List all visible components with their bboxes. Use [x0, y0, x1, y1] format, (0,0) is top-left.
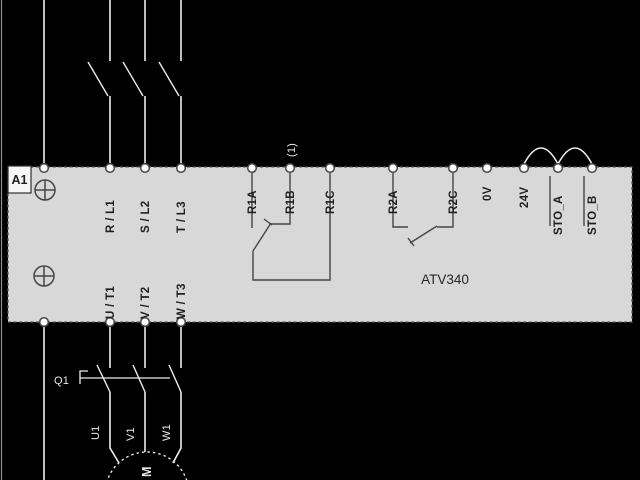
terminal-point: [177, 164, 186, 173]
terminal-label-t-l3: T / L3: [176, 201, 188, 233]
terminal-label-0v: 0V: [482, 186, 494, 201]
terminal-label-s-l2: S / L2: [140, 201, 152, 233]
terminal-point: [483, 164, 492, 173]
motor-label: M: [140, 467, 154, 477]
terminal-point: [40, 164, 49, 173]
earth-ground-icon: [35, 180, 55, 200]
terminal-point: [141, 164, 150, 173]
drive-block: [8, 167, 632, 322]
earth-ground-icon: [34, 266, 54, 286]
device-model-label: ATV340: [421, 272, 469, 287]
terminal-label-sto-a: STO_A: [553, 195, 565, 235]
terminal-label-r1a: R1A: [247, 190, 259, 214]
terminal-point: [286, 164, 295, 173]
terminal-label-r1c: R1C: [325, 190, 337, 214]
motor-lead-label-u1: U1: [90, 426, 102, 440]
terminal-point: [326, 164, 335, 173]
motor-lead-label-v1: V1: [125, 427, 137, 441]
diagram-canvas: A1 R / L1 S / L2 T / L3 R1A R1B R1C R2A …: [0, 0, 640, 480]
terminal-label-r1b: R1B: [285, 190, 297, 214]
terminal-label-u-t1: U / T1: [105, 286, 117, 319]
terminal-point: [40, 318, 49, 327]
wiring-diagram: A1 R / L1 S / L2 T / L3 R1A R1B R1C R2A …: [0, 0, 640, 480]
terminal-label-w-t3: W / T3: [176, 283, 188, 319]
terminal-label-sto-b: STO_B: [587, 195, 599, 235]
terminal-label-r-l1: R / L1: [105, 200, 117, 233]
terminal-point: [588, 164, 597, 173]
terminal-point: [554, 164, 563, 173]
footnote-marker: (1): [286, 143, 298, 157]
motor-lead-label-w1: W1: [161, 424, 173, 441]
terminal-point: [449, 164, 458, 173]
terminal-point: [520, 164, 529, 173]
terminal-label-r2c: R2C: [448, 190, 460, 214]
terminal-point: [106, 164, 115, 173]
terminal-point: [248, 164, 257, 173]
terminal-label-v-t2: V / T2: [140, 287, 152, 319]
terminal-point: [389, 164, 398, 173]
terminal-label-24v: 24V: [519, 187, 531, 208]
device-ref-label: A1: [12, 173, 28, 187]
contactor-label: Q1: [54, 375, 69, 387]
terminal-label-r2a: R2A: [388, 190, 400, 214]
